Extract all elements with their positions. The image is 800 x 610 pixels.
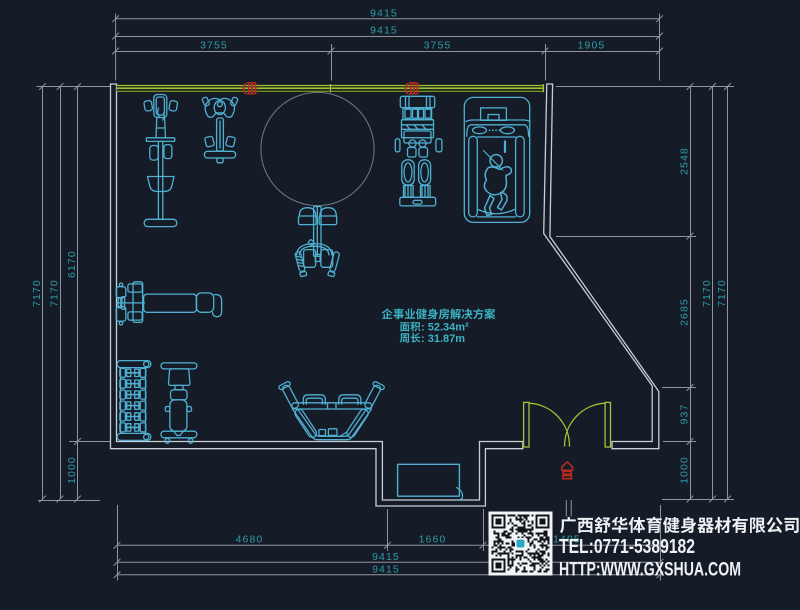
svg-text:9415: 9415: [372, 551, 400, 563]
svg-text:2685: 2685: [679, 298, 691, 326]
svg-text:9415: 9415: [372, 563, 400, 575]
svg-text:1905: 1905: [578, 40, 606, 52]
svg-text:3755: 3755: [200, 40, 228, 52]
svg-text:6170: 6170: [66, 250, 78, 278]
svg-text:4680: 4680: [236, 534, 264, 546]
svg-text:1660: 1660: [419, 534, 447, 546]
svg-text:7170: 7170: [49, 279, 61, 307]
svg-text:7170: 7170: [716, 279, 728, 307]
svg-text:1000: 1000: [66, 456, 78, 484]
svg-text:3755: 3755: [424, 40, 452, 52]
svg-text:HTTP:WWW.GXSHUA.COM: HTTP:WWW.GXSHUA.COM: [559, 560, 741, 581]
svg-text:1000: 1000: [679, 456, 691, 484]
svg-text:9415: 9415: [370, 7, 398, 19]
svg-text:7170: 7170: [701, 279, 713, 307]
svg-text:7170: 7170: [31, 279, 43, 307]
svg-text:2548: 2548: [679, 147, 691, 175]
svg-text:: 52.34m²: : 52.34m²: [421, 322, 469, 334]
svg-text:TEL:0771-5389182: TEL:0771-5389182: [559, 536, 695, 558]
svg-text:9415: 9415: [370, 24, 398, 36]
svg-text:: 31.87m: : 31.87m: [421, 333, 465, 345]
svg-text:937: 937: [679, 404, 691, 425]
